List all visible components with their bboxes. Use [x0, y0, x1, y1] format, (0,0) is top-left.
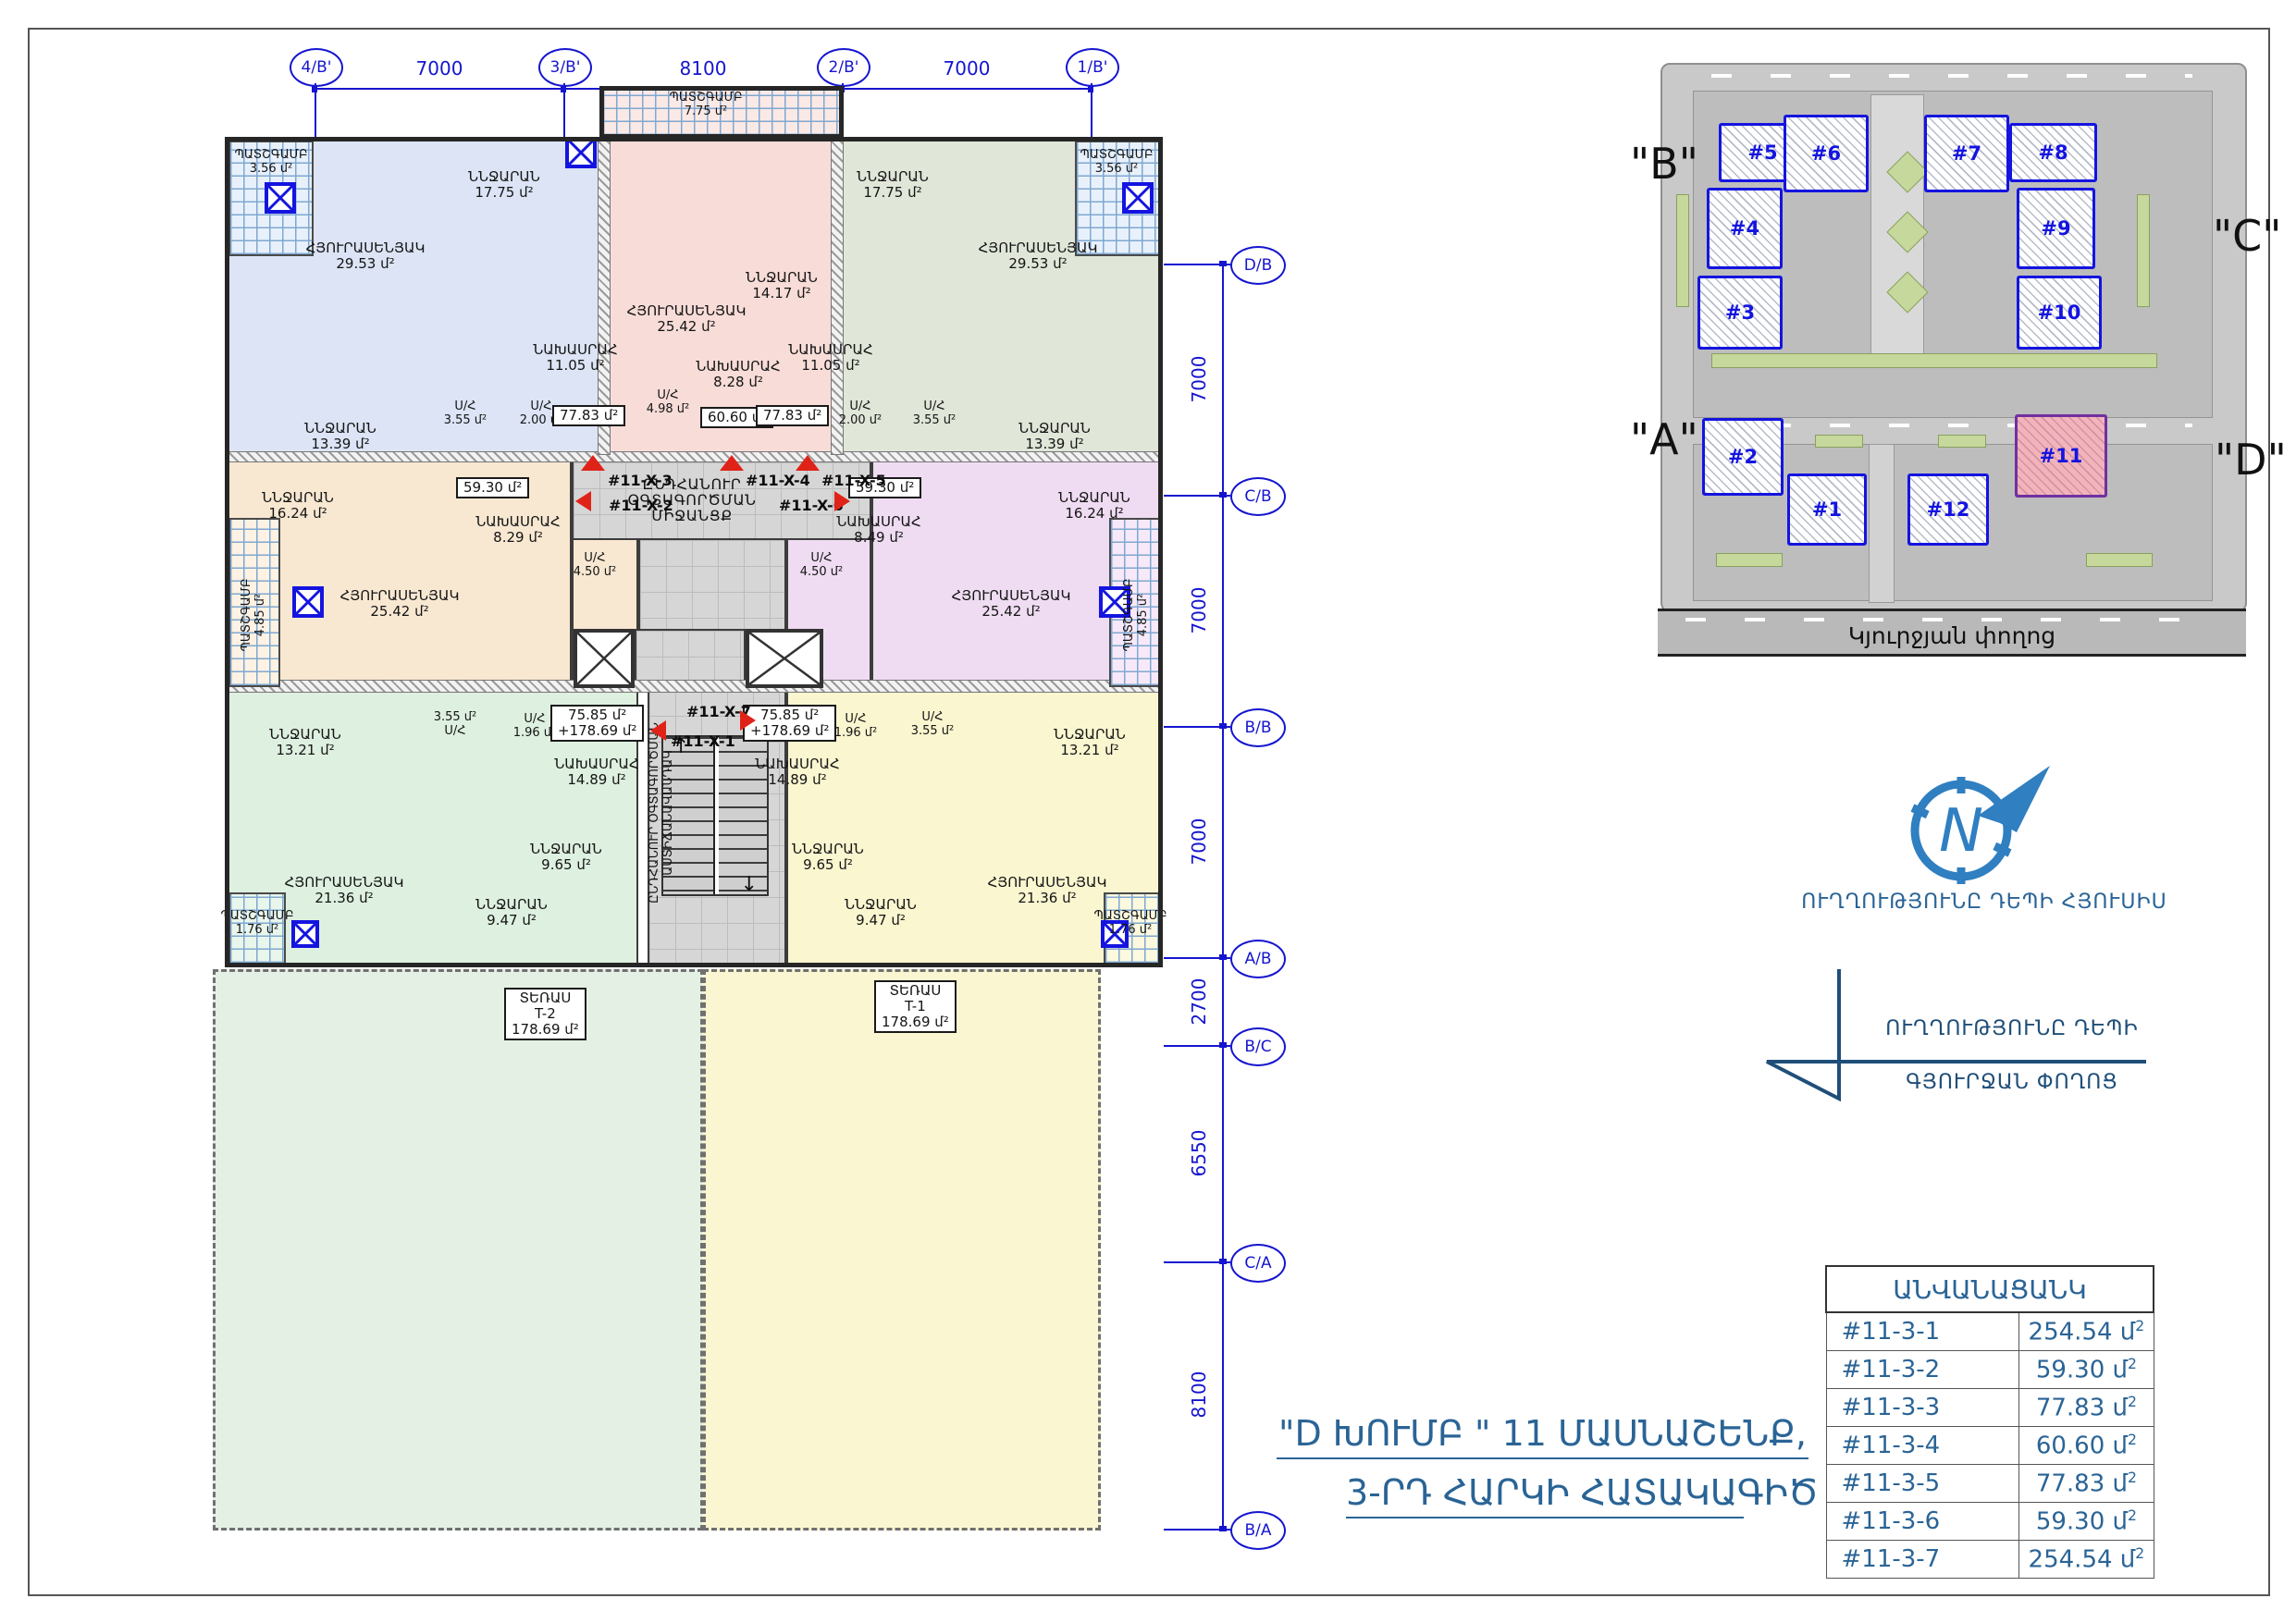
site-building-2: #2 — [1702, 418, 1784, 496]
site-green-3 — [1716, 553, 1783, 567]
apartment-id: #11-3-2 — [1826, 1351, 2019, 1389]
apartment-table: ԱՆՎԱՆԱՑԱՆԿ #11-3-1254.54 մ2#11-3-259.30 … — [1825, 1265, 2154, 1579]
site-building-11: #11 — [2015, 414, 2107, 498]
apartment-area: 254.54 մ2 — [2019, 1541, 2154, 1579]
apartment-table-row: #11-3-7254.54 մ2 — [1826, 1541, 2154, 1579]
street-direction: ՈՒՂՂՈՒԹՅՈՒՆԸ ԴԵՊԻ ԳՅՈՒՐՋԱՆ ՓՈՂՈՑ — [1739, 953, 2183, 1110]
drawing-title-line1: "D ԽՈՒՄԲ " 11 ՄԱՍՆԱՇԵՆՔ, — [1277, 1413, 1808, 1459]
site-building-6: #6 — [1784, 115, 1869, 192]
apartment-id: #11-3-4 — [1826, 1427, 2019, 1465]
apartment-area: 60.60 մ2 — [2019, 1427, 2154, 1465]
apartment-area: 59.30 մ2 — [2019, 1503, 2154, 1541]
north-compass: N — [1869, 758, 2109, 906]
apartment-table-row: #11-3-659.30 մ2 — [1826, 1503, 2154, 1541]
apartment-area: 77.83 մ2 — [2019, 1465, 2154, 1503]
apartment-area: 254.54 մ2 — [2019, 1312, 2154, 1351]
apartment-id: #11-3-1 — [1826, 1312, 2019, 1351]
apartment-table-row: #11-3-259.30 մ2 — [1826, 1351, 2154, 1389]
site-green-1 — [1676, 194, 1689, 307]
site-zone-label: "B" — [1630, 139, 1698, 189]
apartment-table-row: #11-3-577.83 մ2 — [1826, 1465, 2154, 1503]
site-building-9: #9 — [2017, 188, 2095, 269]
site-building-8: #8 — [2009, 123, 2097, 182]
site-green-4 — [2086, 553, 2153, 567]
site-building-1: #1 — [1787, 473, 1867, 546]
apartment-table-row: #11-3-460.60 մ2 — [1826, 1427, 2154, 1465]
street-direction-line2: ԳՅՈՒՐՋԱՆ ՓՈՂՈՑ — [1859, 1071, 2165, 1094]
site-green-5 — [1815, 435, 1863, 448]
site-building-3: #3 — [1697, 276, 1783, 350]
apartment-id: #11-3-3 — [1826, 1389, 2019, 1427]
site-zone-label: "A" — [1630, 414, 1698, 464]
apartment-id: #11-3-7 — [1826, 1541, 2019, 1579]
apartment-id: #11-3-6 — [1826, 1503, 2019, 1541]
site-green-diamond-2 — [1886, 271, 1928, 313]
site-green-6 — [1938, 435, 1986, 448]
site-building-4: #4 — [1707, 188, 1783, 269]
apartment-id: #11-3-5 — [1826, 1465, 2019, 1503]
site-green-0 — [1711, 353, 2157, 368]
site-plan: Կյուրջյան փողոց #5#6#7#8#4#9#3#10#2#11#1… — [1610, 46, 2276, 657]
site-building-12: #12 — [1907, 473, 1989, 546]
site-green-diamond-1 — [1886, 211, 1928, 252]
site-building-10: #10 — [2017, 276, 2102, 350]
site-building-7: #7 — [1924, 115, 2009, 192]
site-zone-label: "C" — [2213, 211, 2281, 261]
compass-icon: N — [1869, 758, 2109, 906]
site-green-2 — [2137, 194, 2150, 307]
site-green-diamond-0 — [1886, 151, 1928, 192]
apartment-table-title: ԱՆՎԱՆԱՑԱՆԿ — [1826, 1266, 2154, 1312]
apartment-area: 59.30 մ2 — [2019, 1351, 2154, 1389]
site-zone-label: "D" — [2215, 435, 2287, 485]
drawing-sheet: ↑↓ԸՆԴՀԱՆՈՒՐ ՕԳՏԱԳՈՐԾՄԱՆԱՍՏԻՃԱՆԱՎԱՆԴԱԿՊԱՏ… — [0, 0, 2296, 1623]
apartment-table-row: #11-3-377.83 մ2 — [1826, 1389, 2154, 1427]
street-direction-line1: ՈՒՂՂՈՒԹՅՈՒՆԸ ԴԵՊԻ — [1859, 1017, 2165, 1040]
compass-caption: ՈՒՂՂՈՒԹՅՈՒՆԸ ԴԵՊԻ ՀՅՈՒՍԻՍ — [1781, 891, 2188, 914]
apartment-table-row: #11-3-1254.54 մ2 — [1826, 1312, 2154, 1351]
compass-letter: N — [1939, 797, 1983, 866]
drawing-title-line2: 3-ՐԴ ՀԱՐԿԻ ՀԱՏԱԿԱԳԻԾ — [1346, 1472, 1744, 1518]
apartment-area: 77.83 մ2 — [2019, 1389, 2154, 1427]
